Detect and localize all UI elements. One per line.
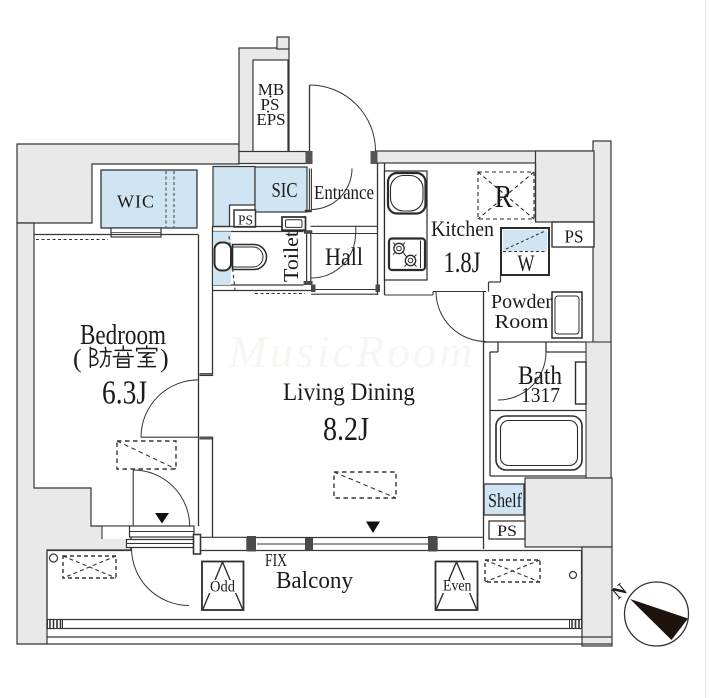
svg-text:WIC: WIC bbox=[117, 192, 154, 212]
svg-text:MusicRoom: MusicRoom bbox=[228, 326, 476, 377]
svg-text:PS: PS bbox=[565, 227, 584, 247]
svg-text:8.2J: 8.2J bbox=[323, 411, 369, 448]
svg-text:EPS: EPS bbox=[256, 110, 285, 129]
svg-text:Living Dining: Living Dining bbox=[283, 379, 415, 406]
svg-text:Balcony: Balcony bbox=[276, 568, 353, 594]
svg-text:Even: Even bbox=[443, 578, 472, 595]
svg-text:R: R bbox=[495, 178, 514, 214]
svg-text:1.8J: 1.8J bbox=[444, 246, 481, 279]
svg-text:PS: PS bbox=[497, 523, 517, 540]
svg-text:Shelf: Shelf bbox=[488, 490, 522, 512]
svg-text:SIC: SIC bbox=[272, 178, 298, 202]
svg-text:6.3J: 6.3J bbox=[102, 375, 147, 412]
svg-text:Toilet: Toilet bbox=[279, 231, 303, 282]
svg-text:W: W bbox=[518, 251, 535, 276]
svg-text:): ) bbox=[160, 344, 169, 373]
svg-text:Hall: Hall bbox=[325, 244, 363, 271]
svg-text:Entrance: Entrance bbox=[314, 182, 374, 204]
svg-text:Kitchen: Kitchen bbox=[431, 216, 494, 241]
svg-text:Room: Room bbox=[495, 311, 549, 333]
svg-text:Odd: Odd bbox=[210, 579, 235, 596]
svg-text:FIX: FIX bbox=[265, 550, 287, 570]
svg-text:(: ( bbox=[73, 344, 82, 373]
svg-text:Powder: Powder bbox=[491, 291, 552, 313]
svg-text:1317: 1317 bbox=[521, 383, 560, 407]
